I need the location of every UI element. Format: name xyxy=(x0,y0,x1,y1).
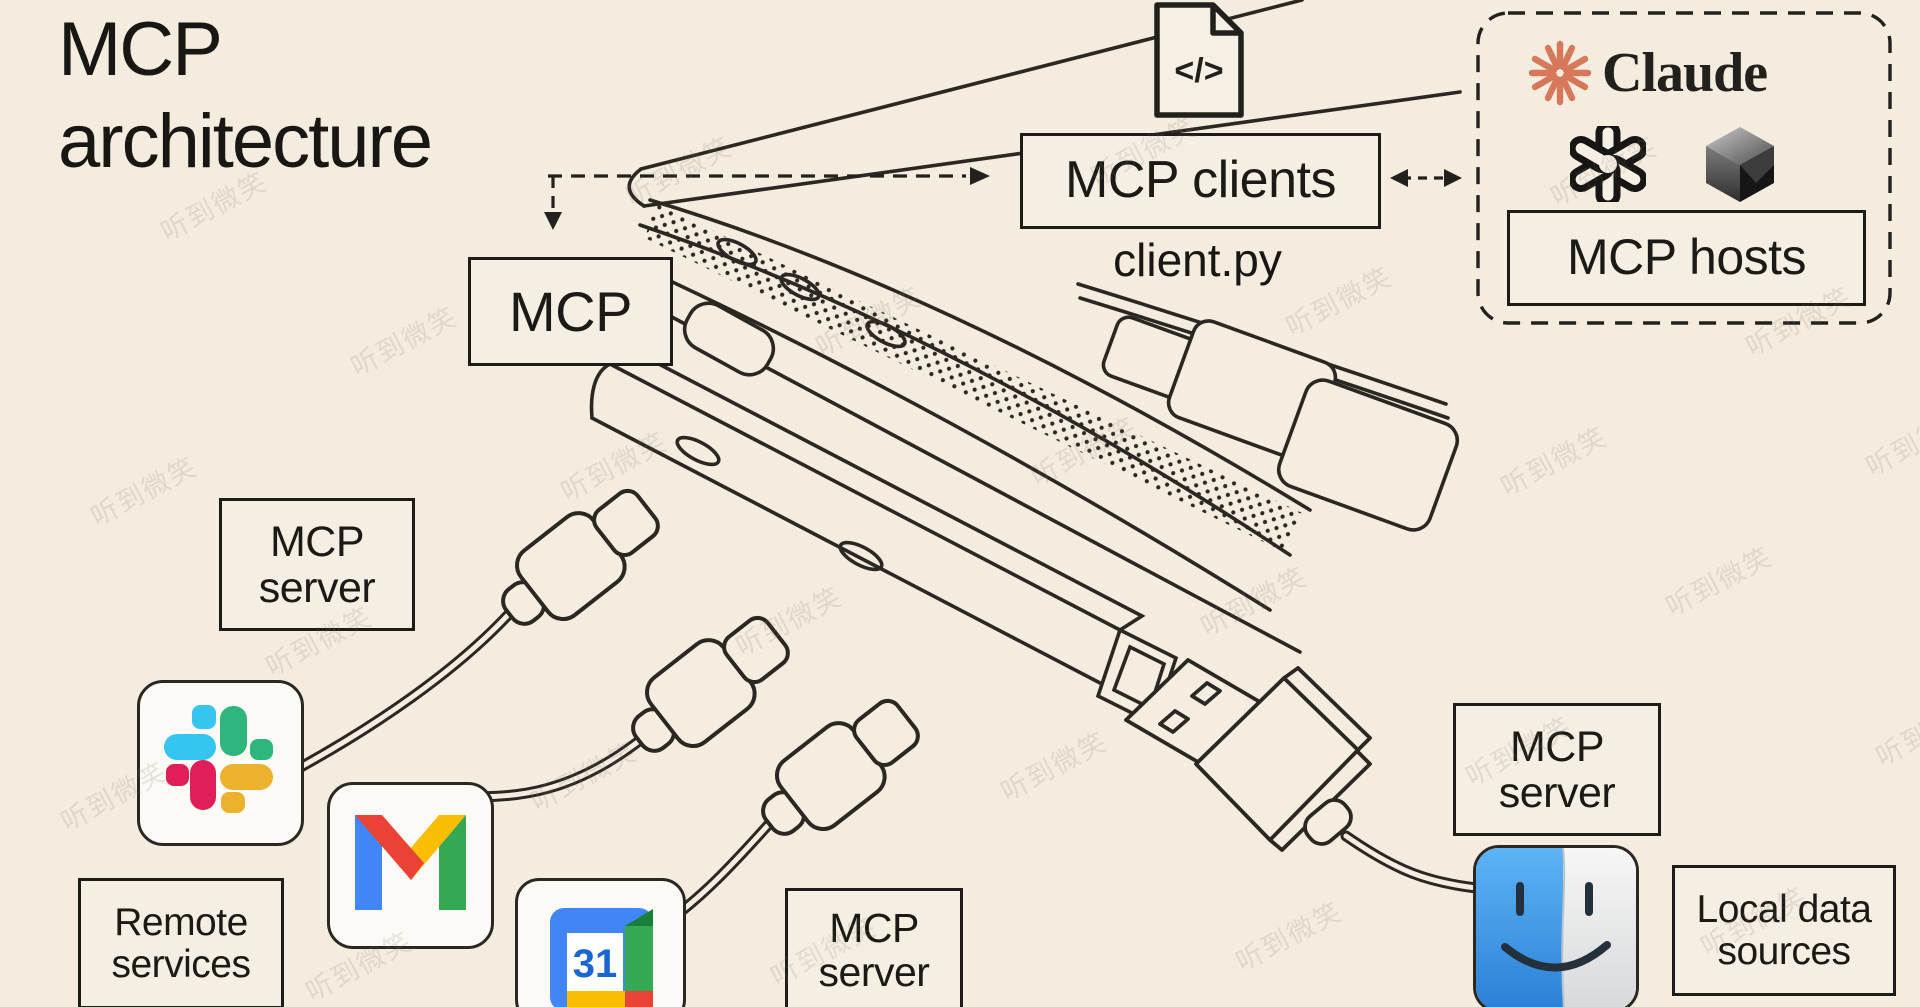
mcp-hosts-label: MCP hosts xyxy=(1567,231,1806,285)
mcp-server-3-box: MCP server xyxy=(1453,703,1661,836)
remote-services-line2: services xyxy=(111,944,250,986)
mcp-server-2-box: MCP server xyxy=(785,888,963,1007)
mcp-box: MCP xyxy=(468,257,673,366)
mcp-server-2-line1: MCP xyxy=(829,907,919,951)
local-data-sources-box: Local data sources xyxy=(1672,865,1896,996)
client-filename: client.py xyxy=(1020,233,1375,287)
usbc-plug-2 xyxy=(614,602,802,774)
mcp-server-3-line1: MCP xyxy=(1510,724,1604,770)
claude-logo: Claude xyxy=(1528,40,1767,106)
claude-wordmark: Claude xyxy=(1602,41,1767,105)
mcp-hosts-box: MCP hosts xyxy=(1507,210,1866,306)
remote-services-line1: Remote xyxy=(114,902,248,944)
mcp-server-1-line2: server xyxy=(259,565,375,611)
mcp-architecture-diagram: </> MCP architecture MCP clients client.… xyxy=(0,0,1920,1007)
gmail-icon xyxy=(327,782,494,949)
mcp-server-1-box: MCP server xyxy=(219,498,415,631)
page-title: MCP architecture xyxy=(58,4,431,188)
calendar-day-number: 31 xyxy=(573,942,618,986)
google-calendar-icon: 31 xyxy=(515,878,686,1007)
mcp-clients-box: MCP clients xyxy=(1020,133,1381,229)
usb-a-plug xyxy=(1126,660,1370,850)
openai-logo xyxy=(1570,126,1646,202)
cable-to-slack xyxy=(299,614,509,768)
local-data-line2: sources xyxy=(1717,931,1850,973)
local-data-line1: Local data xyxy=(1697,889,1872,931)
slack-icon xyxy=(137,680,304,846)
mcp-server-2-line2: server xyxy=(819,951,930,995)
title-line-1: MCP xyxy=(58,4,431,96)
mcp-clients-label: MCP clients xyxy=(1065,153,1336,209)
finder-icon xyxy=(1473,845,1639,1007)
mcp-server-3-line2: server xyxy=(1499,770,1615,816)
usbc-plug-1 xyxy=(484,475,672,647)
usbc-plug-3 xyxy=(744,685,932,857)
code-file-icon: </> xyxy=(1157,5,1241,115)
cable-to-finder xyxy=(1346,836,1476,888)
cursor-logo xyxy=(1704,125,1776,203)
remote-services-box: Remote services xyxy=(78,878,284,1007)
mcp-server-1-line1: MCP xyxy=(270,519,364,565)
code-glyph: </> xyxy=(1174,52,1223,90)
claude-starburst-icon xyxy=(1528,40,1592,106)
mcp-label: MCP xyxy=(509,282,632,342)
laptop-keyboard-keys xyxy=(1100,314,1462,535)
title-line-2: architecture xyxy=(58,96,431,188)
